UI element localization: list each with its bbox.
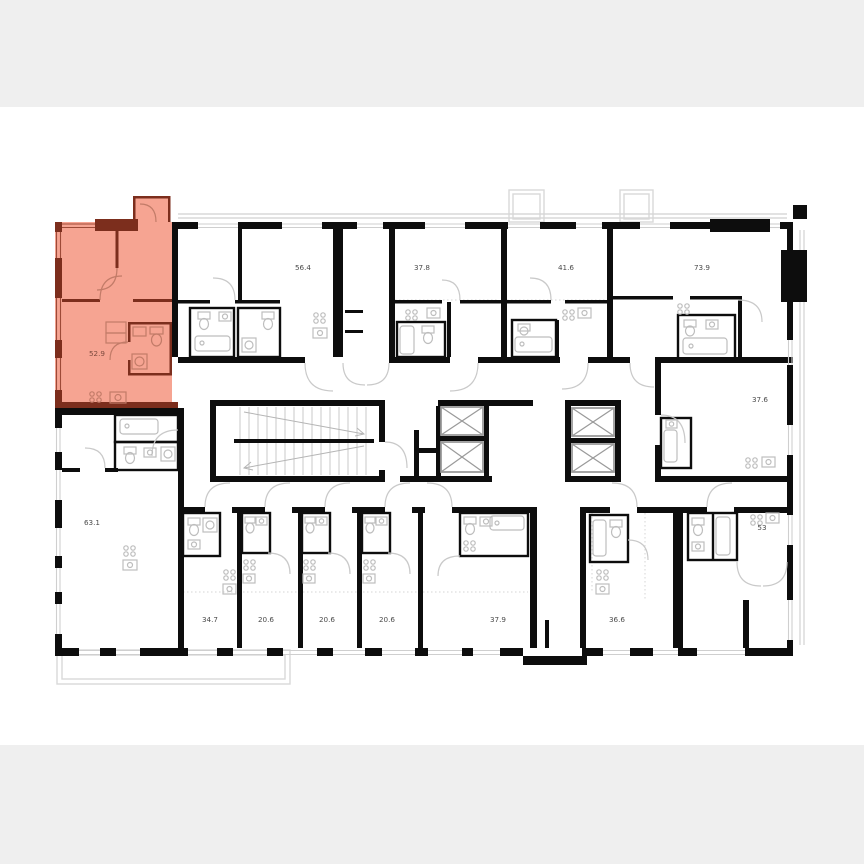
elevator-bank-1 xyxy=(400,400,533,482)
unit-area-label-63-1: 63.1 xyxy=(84,518,100,527)
unit-area-label-20-6-c: 20.6 xyxy=(379,615,395,624)
unit-area-label-73-9: 73.9 xyxy=(694,263,710,272)
unit-area-label-34-7: 34.7 xyxy=(202,615,218,624)
elevator-bank-2 xyxy=(565,400,621,482)
unit-area-label-20-6-a: 20.6 xyxy=(258,615,274,624)
unit-area-label-52-9: 52.9 xyxy=(89,349,105,358)
unit-area-label-56-4: 56.4 xyxy=(295,263,311,272)
unit-area-label-53: 53 xyxy=(757,523,766,532)
unit-labels: 52.9 56.4 37.8 41.6 73.9 37.6 63.1 34.7 … xyxy=(84,263,768,624)
highlight-unit-52-9[interactable] xyxy=(55,196,178,408)
floor-plan-page: 52.9 56.4 37.8 41.6 73.9 37.6 63.1 34.7 … xyxy=(0,0,864,864)
unit-area-label-20-6-b: 20.6 xyxy=(319,615,335,624)
bathroom-walls xyxy=(115,308,737,562)
unit-area-label-37-6: 37.6 xyxy=(752,395,768,404)
stairs xyxy=(210,400,385,482)
floor-plan-svg: 52.9 56.4 37.8 41.6 73.9 37.6 63.1 34.7 … xyxy=(0,0,864,864)
unit-area-label-36-6: 36.6 xyxy=(609,615,625,624)
unit-area-label-41-6: 41.6 xyxy=(558,263,574,272)
unit-area-label-37-8: 37.8 xyxy=(414,263,430,272)
unit-area-label-37-9: 37.9 xyxy=(490,615,506,624)
